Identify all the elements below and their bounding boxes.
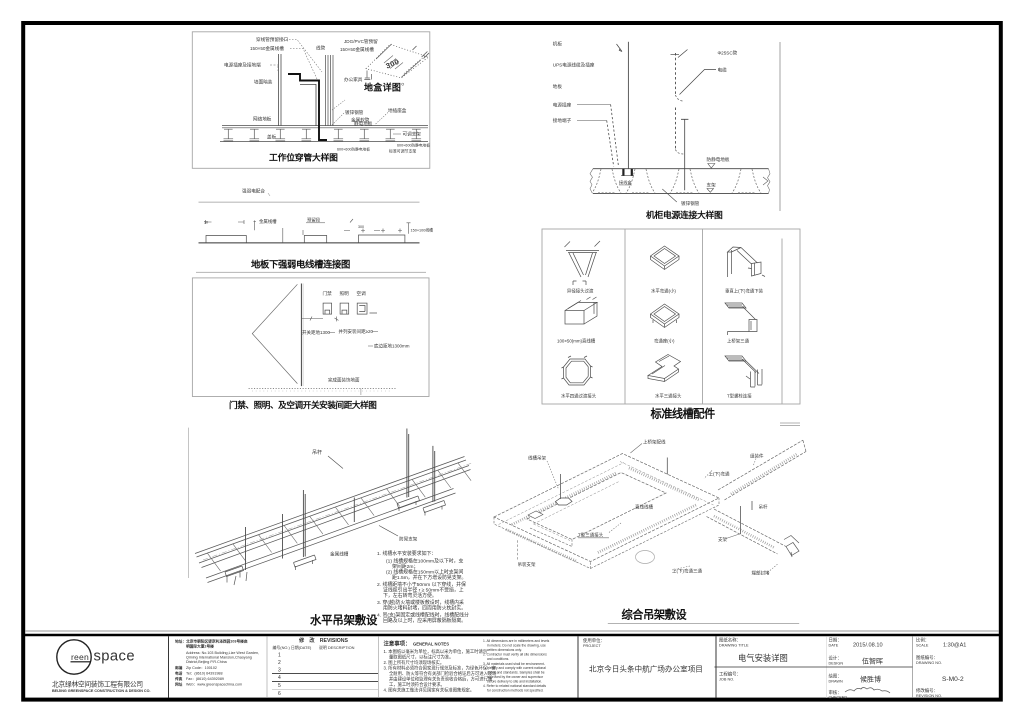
svg-text:1: 1 xyxy=(278,653,281,659)
svg-text:Web：www.greenspacechina.com: Web：www.greenspacechina.com xyxy=(186,683,242,687)
svg-text:and conditions.: and conditions. xyxy=(487,657,509,661)
svg-text:Zip Code：100102: Zip Code：100102 xyxy=(186,666,217,670)
svg-text:1:30@A1: 1:30@A1 xyxy=(943,643,966,649)
svg-text:2. 线槽距墙不小于50mm 以下穿线，并保: 2. 线槽距墙不小于50mm 以下穿线，并保 xyxy=(377,581,466,588)
svg-text:水平弯通(小): 水平弯通(小) xyxy=(651,288,676,295)
svg-text:4. 图有关施工做法详见国家有关标准图集规定。: 4. 图有关施工做法详见国家有关标准图集规定。 xyxy=(384,687,475,694)
svg-text:开关距地1300: 开关距地1300 xyxy=(302,329,331,336)
svg-text:CHECKED: CHECKED xyxy=(829,696,848,700)
svg-text:候胜博: 候胜博 xyxy=(860,675,881,684)
svg-text:(2) 线槽规格在150mm以上时支架间: (2) 线槽规格在150mm以上时支架间 xyxy=(386,569,464,576)
svg-text:办公家具: 办公家具 xyxy=(344,76,363,83)
svg-text:端部封堵: 端部封堵 xyxy=(752,570,770,577)
svg-text:Fax：(8610) 64392089: Fax：(8610) 64392089 xyxy=(186,677,224,681)
svg-text:T型螺栓连接: T型螺栓连接 xyxy=(727,393,752,400)
svg-text:3: 3 xyxy=(278,668,281,674)
svg-text:DESIGN: DESIGN xyxy=(829,662,844,666)
svg-text:friendly and comply with curre: friendly and comply with current nationa… xyxy=(487,666,546,670)
svg-text:上(下)弯通三通: 上(下)弯通三通 xyxy=(672,568,702,575)
svg-text:绘图：: 绘图： xyxy=(829,673,842,680)
svg-text:邮编: 邮编 xyxy=(175,665,183,670)
svg-text:门禁: 门禁 xyxy=(323,290,333,297)
svg-text:图纸编号：: 图纸编号： xyxy=(916,654,938,661)
svg-text:JDG/PVC管预留: JDG/PVC管预留 xyxy=(344,38,378,45)
svg-text:150×100线槽: 150×100线槽 xyxy=(411,228,434,233)
svg-text:底边距地1300mm: 底边距地1300mm xyxy=(374,343,410,350)
svg-text:600×600防静电地板: 600×600防静电地板 xyxy=(397,143,430,148)
svg-text:上桥架配线: 上桥架配线 xyxy=(643,439,666,446)
svg-text:DRAWING TITLE: DRAWING TITLE xyxy=(719,644,749,648)
svg-text:电缆: 电缆 xyxy=(718,67,728,74)
svg-text:150×50金属线槽: 150×50金属线槽 xyxy=(250,45,284,52)
svg-text:伍智晖: 伍智晖 xyxy=(862,657,883,666)
svg-text:3. All materials used shall be: 3. All materials used shall be environme… xyxy=(483,662,545,666)
svg-text:5: 5 xyxy=(278,683,281,689)
svg-text:盖板: 盖板 xyxy=(267,134,277,141)
svg-text:镀锌钢管: 镀锌钢管 xyxy=(681,200,700,207)
svg-text:镀锌钢管: 镀锌钢管 xyxy=(345,109,364,116)
svg-text:150×50金属线槽: 150×50金属线槽 xyxy=(340,46,374,53)
svg-text:水平四通过渡接头: 水平四通过渡接头 xyxy=(561,393,597,400)
svg-text:地址：北京市朝阳区望京利泽西园103号楼启: 地址：北京市朝阳区望京利泽西园103号楼启 xyxy=(175,639,248,644)
svg-text:吊杆: 吊杆 xyxy=(312,449,322,456)
svg-text:距1.5m，并在下方增设防晃支架。: 距1.5m，并在下方增设防晃支架。 xyxy=(392,574,466,581)
svg-text:Φ25SC管: Φ25SC管 xyxy=(718,50,738,57)
svg-text:可调支架: 可调支架 xyxy=(403,131,422,138)
svg-text:组装件: 组装件 xyxy=(750,453,764,460)
svg-text:地板: 地板 xyxy=(553,83,563,90)
svg-text:接地端子: 接地端子 xyxy=(553,117,572,124)
svg-text:for construction methods not s: for construction methods not specified. xyxy=(487,689,544,693)
svg-text:电气安装详图: 电气安装详图 xyxy=(738,653,788,663)
svg-text:300: 300 xyxy=(358,225,364,229)
svg-text:机柜电源连接大样图: 机柜电源连接大样图 xyxy=(646,209,723,220)
svg-text:传真: 传真 xyxy=(174,676,183,681)
svg-text:空调: 空调 xyxy=(357,290,367,297)
svg-text:修改编号：: 修改编号： xyxy=(916,687,938,694)
svg-text:Tel：(8610) 64391988: Tel：(8610) 64391988 xyxy=(186,672,223,676)
svg-text:水平三通接头: 水平三通接头 xyxy=(655,393,682,400)
svg-text:设计：: 设计： xyxy=(829,655,842,662)
svg-text:DRAWING NO.: DRAWING NO. xyxy=(916,661,942,665)
svg-text:3. 穿(越)防火墙或楼板敷设时，线槽内采: 3. 穿(越)防火墙或楼板敷设时，线槽内采 xyxy=(377,599,464,606)
svg-text:上桥架三通: 上桥架三通 xyxy=(727,338,750,345)
svg-text:地盒详图: 地盒详图 xyxy=(364,82,401,93)
svg-text:垂直上(下)弯通下装: 垂直上(下)弯通下装 xyxy=(725,288,764,295)
svg-text:UPS电源线缆及插座: UPS电源线缆及插座 xyxy=(553,62,595,69)
svg-text:BEIJING GREENSPACE CONSTRUCTIO: BEIJING GREENSPACE CONSTRUCTION & DESIGN… xyxy=(52,689,150,693)
svg-text:in meters. Do not scale the dr: in meters. Do not scale the drawing, use xyxy=(487,643,546,647)
svg-text:1. All dimensions are in milli: 1. All dimensions are in millimeters and… xyxy=(483,639,550,643)
svg-text:强弱电配合: 强弱电配合 xyxy=(242,188,265,195)
svg-text:综合吊架敷设: 综合吊架敷设 xyxy=(622,608,688,622)
svg-text:网络地板: 网络地板 xyxy=(253,116,272,123)
svg-text:弯通座(小): 弯通座(小) xyxy=(654,338,675,345)
svg-text:标准可调节支架: 标准可调节支架 xyxy=(389,149,416,154)
svg-text:DATE: DATE xyxy=(829,644,839,648)
svg-text:防静电地板: 防静电地板 xyxy=(707,156,730,163)
svg-text:4. 吊(支)架固定或线槽配线时，线槽配线分: 4. 吊(支)架固定或线槽配线时，线槽配线分 xyxy=(377,612,469,619)
svg-text:1. 线槽水平安装要求如下：: 1. 线槽水平安装要求如下： xyxy=(377,550,436,557)
svg-text:下，左右转弯灵活方便。: 下，左右转弯灵活方便。 xyxy=(383,592,437,599)
svg-text:电源插座: 电源插座 xyxy=(553,102,572,109)
svg-text:机柜: 机柜 xyxy=(553,41,563,48)
svg-text:直线线槽: 直线线槽 xyxy=(635,504,653,511)
svg-text:水平吊架敷设: 水平吊架敷设 xyxy=(310,613,378,627)
svg-text:支架: 支架 xyxy=(707,182,717,189)
svg-text:地插座盒: 地插座盒 xyxy=(388,107,407,114)
svg-text:600×600防静电地板: 600×600防静电地板 xyxy=(337,147,370,152)
svg-text:金属线槽: 金属线槽 xyxy=(259,218,277,225)
svg-text:线管: 线管 xyxy=(316,45,326,52)
svg-text:异径接头过渡: 异径接头过渡 xyxy=(567,288,594,295)
svg-text:门禁、照明、及空调开关安装间距大样图: 门禁、照明、及空调开关安装间距大样图 xyxy=(229,399,377,410)
svg-text:证线缆引出半径 r ≥ 50mm不受损，上: 证线缆引出半径 r ≥ 50mm不受损，上 xyxy=(383,587,464,594)
svg-text:Qiming International Mansion,C: Qiming International Mansion,Chaoyang xyxy=(186,655,252,659)
svg-text:District,Beijing P.R.China: District,Beijing P.R.China xyxy=(186,660,228,664)
svg-text:工程编号：: 工程编号： xyxy=(719,671,741,678)
svg-text:北京绿林空间装饰工程有限公司: 北京绿林空间装饰工程有限公司 xyxy=(52,680,143,689)
svg-text:space: space xyxy=(94,649,136,665)
svg-text:written dimensions only.: written dimensions only. xyxy=(487,648,522,652)
svg-text:穿线管预留接口: 穿线管预留接口 xyxy=(256,36,289,43)
svg-text:SCALE: SCALE xyxy=(916,644,929,648)
svg-text:北京今日头条中航广场办公室项目: 北京今日头条中航广场办公室项目 xyxy=(589,664,703,674)
svg-text:REVISION NO.: REVISION NO. xyxy=(916,694,942,698)
svg-text:回路及以上时，应采用屏蔽隔板隔离。: 回路及以上时，应采用屏蔽隔板隔离。 xyxy=(383,617,466,624)
svg-text:JOB NO.: JOB NO. xyxy=(719,678,734,682)
svg-text:(1) 线槽规格在100mm及以下时，支: (1) 线槽规格在100mm及以下时，支 xyxy=(386,558,464,565)
svg-text:4. Refer to related national s: 4. Refer to related national standard de… xyxy=(483,684,546,688)
svg-text:T型三通接头: T型三通接头 xyxy=(578,532,604,539)
svg-text:说明 DESCRIPTION: 说明 DESCRIPTION xyxy=(319,645,355,650)
svg-text:上(下)弯通: 上(下)弯通 xyxy=(709,471,730,478)
svg-text:GENERAL NOTES: GENERAL NOTES xyxy=(413,642,449,647)
svg-text:地板下强弱电线槽连接图: 地板下强弱电线槽连接图 xyxy=(251,259,350,270)
svg-text:DRAWN: DRAWN xyxy=(829,680,843,684)
svg-text:50: 50 xyxy=(204,221,208,225)
svg-text:2: 2 xyxy=(278,660,281,666)
svg-text:图纸名称：: 图纸名称： xyxy=(719,637,741,644)
svg-text:支架: 支架 xyxy=(718,536,727,543)
svg-text:网址: 网址 xyxy=(175,682,183,687)
svg-text:完成面装饰地面: 完成面装饰地面 xyxy=(328,377,360,384)
svg-text:修 改 REVISIONS: 修 改 REVISIONS xyxy=(298,636,349,644)
svg-text:before delivery to site and in: before delivery to site and installation… xyxy=(487,679,542,683)
svg-text:防晃支架: 防晃支架 xyxy=(399,536,418,543)
svg-text:吊装支架: 吊装支架 xyxy=(518,561,536,568)
svg-text:工作位穿管大样图: 工作位穿管大样图 xyxy=(269,152,338,163)
svg-text:100×50(mm)直线槽: 100×50(mm)直线槽 xyxy=(557,338,596,345)
svg-text:2015/.08.10: 2015/.08.10 xyxy=(853,643,883,649)
svg-text:编号(NO.) 日期(DATE): 编号(NO.) 日期(DATE) xyxy=(273,645,313,650)
svg-text:线槽吊架: 线槽吊架 xyxy=(528,455,546,462)
svg-text:PROJECT: PROJECT xyxy=(583,644,601,648)
svg-text:codes and standards. Samples s: codes and standards. Samples shall be xyxy=(487,671,545,675)
svg-text:注意事项：: 注意事项： xyxy=(384,640,411,648)
svg-text:6: 6 xyxy=(278,691,281,697)
svg-text:并列安装间距≥20: 并列安装间距≥20 xyxy=(339,328,374,335)
svg-text:静电地板: 静电地板 xyxy=(354,120,373,127)
svg-text:比例：: 比例： xyxy=(916,637,929,644)
svg-text:2. Contractor must verify all: 2. Contractor must verify all site dimen… xyxy=(483,653,547,657)
svg-text:使用单位：: 使用单位： xyxy=(583,637,605,644)
svg-text:架间距2m；: 架间距2m； xyxy=(392,563,418,570)
svg-text:标准线槽配件: 标准线槽配件 xyxy=(650,407,715,421)
svg-text:电源插座及接地端: 电源插座及接地端 xyxy=(224,62,261,69)
svg-text:reen: reen xyxy=(71,652,89,662)
svg-text:approved by the owner and supe: approved by the owner and supervisor xyxy=(487,675,544,679)
svg-text:用防火堵料封堵，四周用防火枕封实。: 用防火堵料封堵，四周用防火枕封实。 xyxy=(383,605,466,612)
svg-text:预留段: 预留段 xyxy=(307,217,321,224)
svg-text:4: 4 xyxy=(278,675,281,681)
svg-text:Address: No.103 Building,Lize: Address: No.103 Building,Lize West Garde… xyxy=(186,651,259,655)
svg-text:墙面暗装: 墙面暗装 xyxy=(254,79,273,86)
svg-text:明国际大厦2号楼: 明国际大厦2号楼 xyxy=(186,644,214,649)
svg-text:S-M0-2: S-M0-2 xyxy=(942,676,964,683)
svg-text:金属线槽: 金属线槽 xyxy=(330,551,349,558)
svg-text:电话: 电话 xyxy=(175,671,183,676)
svg-text:吊杆: 吊杆 xyxy=(759,504,768,511)
